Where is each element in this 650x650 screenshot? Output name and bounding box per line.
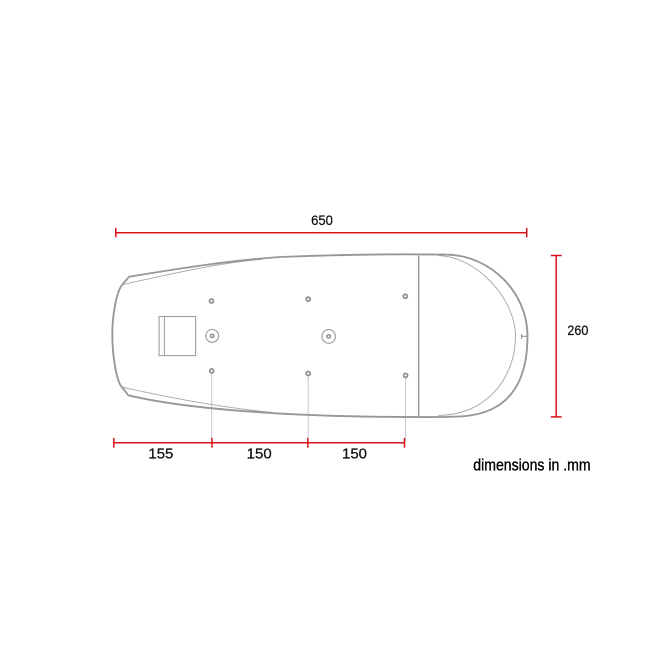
svg-text:dimensions in .mm: dimensions in .mm — [473, 457, 590, 475]
svg-text:155: 155 — [148, 447, 173, 463]
svg-text:650: 650 — [311, 212, 333, 228]
svg-text:150: 150 — [342, 447, 367, 463]
svg-text:260: 260 — [567, 322, 588, 338]
svg-text:150: 150 — [247, 447, 272, 463]
